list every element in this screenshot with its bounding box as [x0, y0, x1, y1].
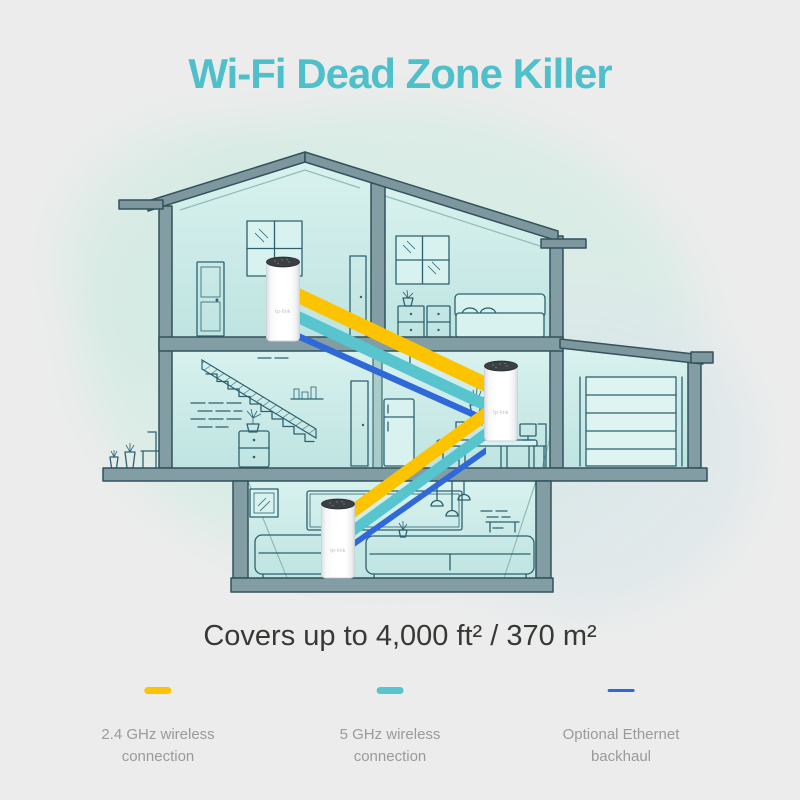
house-illustration: tp-link tp-link tp-link [0, 0, 800, 800]
deco-logo-text: tp-link [330, 548, 346, 554]
legend-label-ethernet: Optional Ethernet backhaul [563, 724, 680, 768]
garage-right-wall [688, 360, 701, 468]
deco-unit-middle: tp-link [485, 361, 518, 441]
deco-logo-text: tp-link [275, 309, 291, 315]
legend-item-5ghz: 5 GHz wireless connection [340, 686, 441, 768]
legend-label-5ghz: 5 GHz wireless connection [340, 724, 441, 768]
marketing-page: tp-link tp-link tp-link Wi-Fi Dead Zone … [0, 0, 800, 800]
legend-item-24ghz: 2.4 GHz wireless connection [101, 686, 214, 768]
deco-unit-bottom: tp-link [322, 499, 355, 578]
legend-swatch-24ghz [145, 687, 172, 694]
roof-left-eave [119, 200, 163, 209]
garage [580, 377, 682, 466]
bed [455, 294, 545, 343]
garage-roof-end [691, 352, 713, 363]
legend-swatch-5ghz [376, 687, 403, 694]
window-bedroom [396, 236, 449, 284]
legend-swatch-ethernet [608, 689, 635, 692]
ridge-post [371, 183, 385, 337]
ground-left-wall [233, 481, 248, 578]
picture-frame [250, 489, 278, 517]
right-wall [550, 236, 563, 468]
deco-unit-top: tp-link [267, 257, 300, 341]
roof-right-eave [541, 239, 586, 248]
legend-label-24ghz: 2.4 GHz wireless connection [101, 724, 214, 768]
ground-right-wall [536, 481, 551, 578]
coverage-text: Covers up to 4,000 ft² / 370 m² [0, 620, 800, 653]
page-title: Wi-Fi Dead Zone Killer [0, 50, 800, 98]
ground-slab [231, 578, 553, 592]
legend-item-ethernet: Optional Ethernet backhaul [563, 686, 680, 768]
fridge [384, 399, 414, 466]
deco-logo-text: tp-link [493, 410, 509, 416]
